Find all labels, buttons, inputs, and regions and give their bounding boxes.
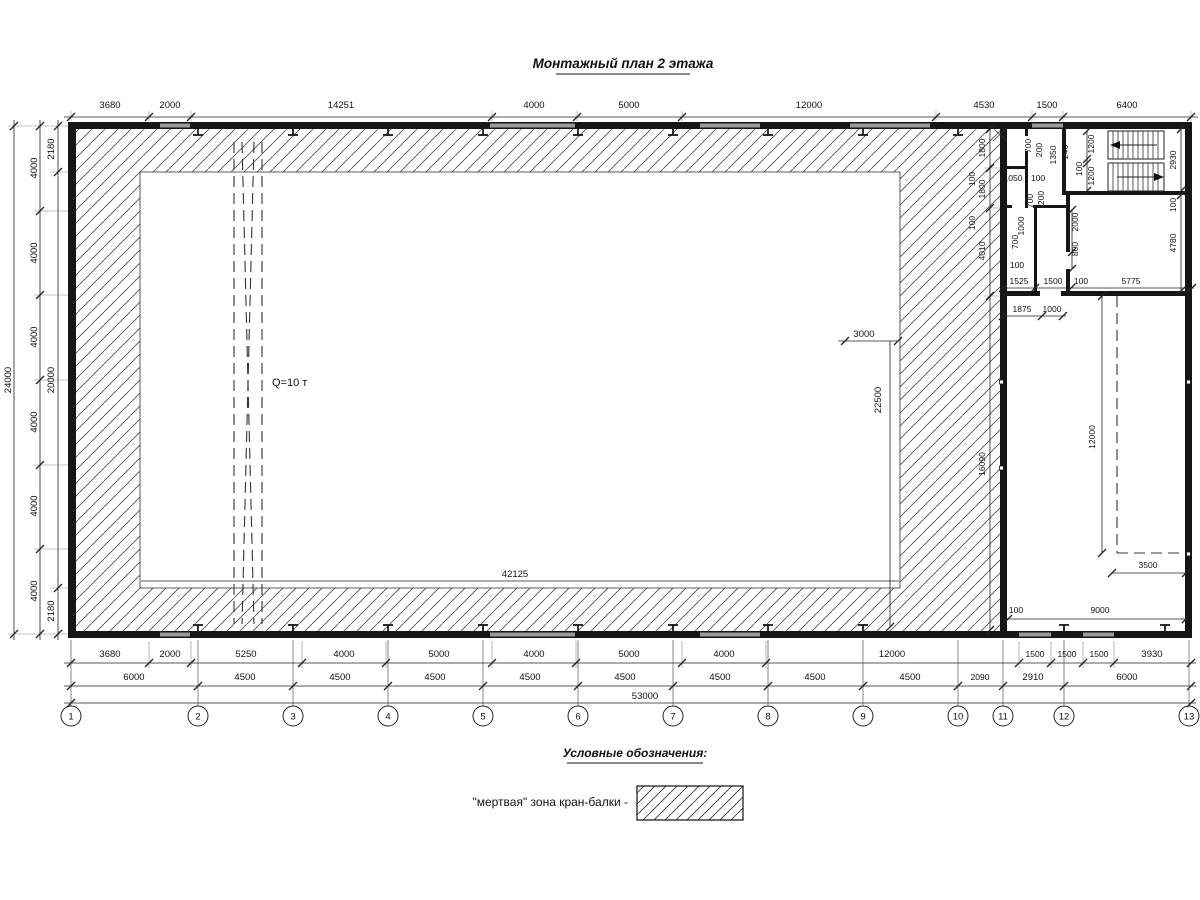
dim-label: 4000: [29, 580, 40, 601]
dim-label: 2930: [1168, 150, 1178, 169]
grid-axis-number: 10: [953, 712, 964, 723]
dim-label: 4500: [804, 672, 825, 683]
dim-label: 3930: [1141, 649, 1162, 660]
dim-label: 100: [967, 216, 977, 230]
dim-label: 12000: [796, 100, 822, 111]
grid-axis-number: 7: [670, 712, 675, 723]
dim-label: 100: [1074, 276, 1088, 286]
dim-label: 700: [1025, 194, 1035, 208]
total-width-label: 53000: [632, 691, 658, 702]
dim-label: 1200: [1086, 134, 1096, 153]
drawing-sheet: Монтажный план 2 этажа: [0, 0, 1200, 900]
grid-axis-number: 2: [195, 712, 200, 723]
dim-label: 246: [1060, 145, 1070, 159]
grid-axis-bubbles: 1 2 3 4 5 6 7 8 9 10 11 12 13: [61, 706, 1199, 726]
dim-label: 100: [1009, 605, 1023, 615]
dim-label: 5000: [428, 649, 449, 660]
grid-axis-number: 3: [290, 712, 295, 723]
dim-label: 5250: [235, 649, 256, 660]
dim-label: 42125: [502, 569, 528, 580]
top-dimension-chain: 3680 2000 14251 4000 5000 12000 4530 150…: [99, 100, 1137, 111]
dim-label: 100: [1031, 173, 1045, 183]
dim-label: 6400: [1116, 100, 1137, 111]
dim-label: 4000: [29, 326, 40, 347]
dim-label: 4500: [519, 672, 540, 683]
grid-axis-number: 1: [68, 712, 73, 723]
dim-label: 1000: [1043, 304, 1062, 314]
dim-label: 2000: [1070, 212, 1080, 231]
dim-label: 2090: [971, 672, 990, 682]
dim-label: 3680: [99, 649, 120, 660]
hall-dimensions: 42125 3000 22500: [502, 329, 884, 580]
grid-axis-number: 8: [765, 712, 770, 723]
crane-coverage-rect: [140, 172, 900, 588]
dim-label: 4000: [523, 649, 544, 660]
dim-label: 4500: [709, 672, 730, 683]
grid-axis-number: 13: [1184, 712, 1195, 723]
stair-down-arrow: [1154, 173, 1164, 181]
dim-label: 5775: [1122, 276, 1141, 286]
dim-label: 100: [1010, 260, 1024, 270]
dim-label: 2180: [46, 600, 57, 621]
floor-plan-canvas: Монтажный план 2 этажа: [0, 0, 1200, 900]
dim-label: 4780: [1168, 233, 1178, 252]
dim-label: 6000: [123, 672, 144, 683]
dim-label: 700: [1023, 139, 1033, 153]
dim-label: 2180: [46, 138, 57, 159]
dim-label: 2000: [159, 100, 180, 111]
dim-label: 6000: [1116, 672, 1137, 683]
dim-label: 4000: [29, 157, 40, 178]
dim-label: 14251: [328, 100, 354, 111]
page-title: Монтажный план 2 этажа: [533, 56, 714, 71]
legend-hatch-swatch: [637, 786, 743, 820]
dim-label: 100: [967, 172, 977, 186]
dim-label: 1875: [1013, 304, 1032, 314]
column-marks: [193, 129, 1170, 631]
dim-label: 2000: [159, 649, 180, 660]
dim-label: 1350: [1048, 145, 1058, 164]
dim-label: 4500: [614, 672, 635, 683]
dim-label: 1800: [977, 179, 987, 198]
legend-heading: Условные обозначения:: [563, 746, 708, 760]
grid-axis-number: 11: [998, 712, 1008, 723]
dim-label: 4000: [29, 495, 40, 516]
dim-label: 5000: [618, 649, 639, 660]
dim-label: 1500: [1044, 276, 1063, 286]
dim-label: 200: [1036, 191, 1046, 205]
bottom-dimension-chain-2: 6000 4500 4500 4500 4500 4500 4500 4500 …: [123, 672, 1137, 683]
dim-label: 1500: [1036, 100, 1057, 111]
dim-label: 4500: [899, 672, 920, 683]
dim-label: 3000: [853, 329, 874, 340]
dim-label: 700: [1010, 235, 1020, 249]
dim-label: 4500: [329, 672, 350, 683]
dim-label: 100: [1074, 162, 1084, 176]
dim-label: 4000: [29, 242, 40, 263]
grid-axis-number: 6: [575, 712, 580, 723]
dim-label: 16090: [977, 452, 987, 476]
legend: Условные обозначения: "мертвая" зона кра…: [472, 746, 743, 820]
dim-label: 4000: [29, 411, 40, 432]
dim-label: 1000: [1016, 216, 1026, 235]
dim-label: 3500: [1139, 560, 1158, 570]
dim-label: 5000: [618, 100, 639, 111]
dim-label: 1500: [1058, 649, 1077, 659]
grid-axis-number: 4: [385, 712, 390, 723]
dim-label: 1500: [1090, 649, 1109, 659]
dim-label: 1200: [1086, 166, 1096, 185]
dim-label: 1800: [977, 138, 987, 157]
dim-label: 200: [1034, 143, 1044, 157]
dim-label: 4530: [973, 100, 994, 111]
dim-label: 4500: [234, 672, 255, 683]
dim-label: 4000: [523, 100, 544, 111]
dim-label: 3680: [99, 100, 120, 111]
dim-label: 9000: [1091, 605, 1110, 615]
crane-capacity-label: Q=10 т: [272, 377, 307, 389]
building-walls: [68, 122, 1192, 638]
dim-label: 2910: [1022, 672, 1043, 683]
grid-axis-number: 9: [860, 712, 865, 723]
dim-label: 4000: [333, 649, 354, 660]
stair-up-arrow: [1110, 141, 1120, 149]
dim-label: 800: [1070, 242, 1080, 256]
dim-label: 20000: [46, 367, 57, 393]
dim-label: 4000: [713, 649, 734, 660]
dim-label: 4500: [424, 672, 445, 683]
dim-label: 24000: [3, 367, 14, 393]
dim-label: 4010: [977, 241, 987, 260]
layout-dashed-lines: [1117, 296, 1185, 553]
dim-label: 100: [1168, 198, 1178, 212]
grid-axis-number: 5: [480, 712, 485, 723]
dim-label: 1500: [1026, 649, 1045, 659]
staircase: [1108, 131, 1164, 191]
crane-dead-zone-hatch: [76, 129, 1000, 631]
legend-item-label: "мертвая" зона кран-балки -: [472, 795, 628, 809]
dim-label: 12000: [879, 649, 905, 660]
crane-beam-symbol: [234, 142, 262, 624]
grid-axis-number: 12: [1059, 712, 1070, 723]
dim-label: 12000: [1087, 425, 1097, 449]
dim-label: 22500: [873, 387, 884, 413]
drawing-title: Монтажный план 2 этажа: [533, 56, 714, 74]
dim-label: 1525: [1010, 276, 1029, 286]
dim-label: 1050: [1004, 173, 1023, 183]
